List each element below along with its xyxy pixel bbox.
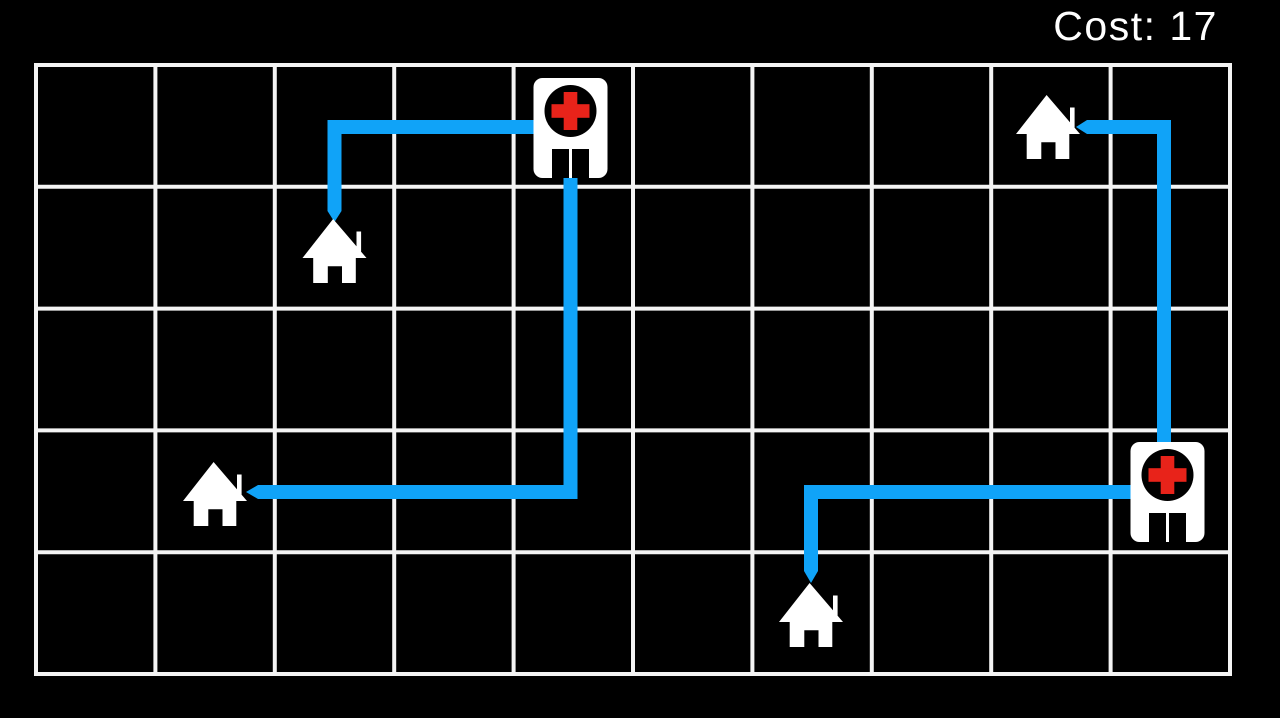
game-board[interactable]: [0, 0, 1280, 718]
route-path: [328, 127, 535, 222]
route-arrow-tip: [804, 571, 818, 583]
game-screen: Cost: 17: [0, 0, 1280, 718]
route-path: [246, 177, 571, 499]
route-arrow-tip: [246, 485, 258, 499]
hospital-2-icon[interactable]: [1131, 442, 1205, 542]
grid-lines: [34, 63, 1232, 676]
house-c-icon[interactable]: [779, 583, 843, 647]
route-path: [1076, 120, 1164, 443]
hospital-1-icon[interactable]: [534, 78, 608, 178]
house-d-icon[interactable]: [1016, 95, 1080, 159]
house-b-icon[interactable]: [183, 462, 247, 526]
house-a-icon[interactable]: [303, 219, 367, 283]
route-path: [804, 492, 1131, 583]
route-arrow-tip: [328, 211, 342, 222]
